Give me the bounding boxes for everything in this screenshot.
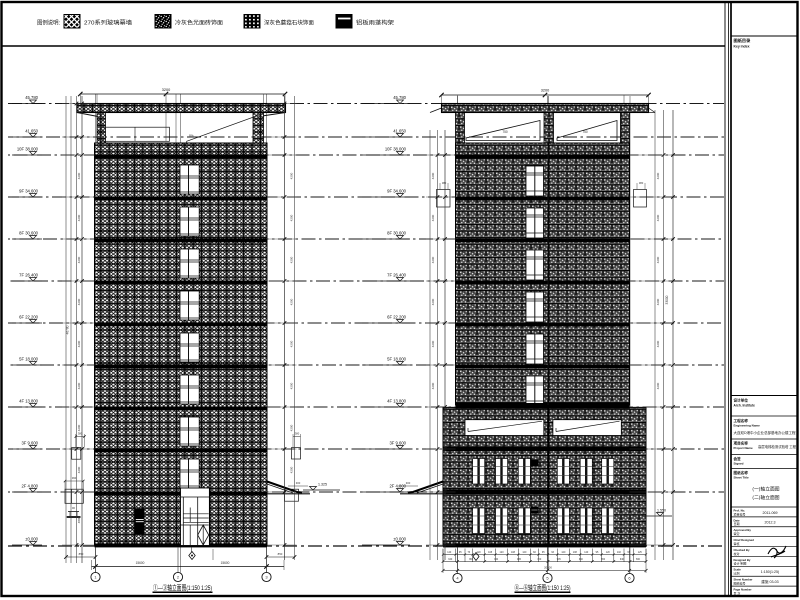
svg-text:4200: 4200 bbox=[656, 214, 660, 221]
svg-text:4200: 4200 bbox=[290, 424, 294, 431]
svg-text:4200: 4200 bbox=[656, 172, 660, 179]
svg-text:33000: 33000 bbox=[665, 295, 669, 304]
svg-text:会签: 会签 bbox=[733, 456, 742, 461]
svg-text:铝板雨蓬构架: 铝板雨蓬构架 bbox=[356, 19, 394, 27]
svg-text:8%: 8% bbox=[189, 134, 194, 138]
svg-text:9F 34.600: 9F 34.600 bbox=[19, 188, 39, 193]
svg-text:校对: 校对 bbox=[734, 551, 740, 556]
svg-text:960: 960 bbox=[469, 558, 474, 561]
svg-text:120: 120 bbox=[606, 551, 611, 554]
svg-text:±0.000: ±0.000 bbox=[393, 536, 406, 541]
svg-text:4200: 4200 bbox=[431, 256, 435, 263]
svg-text:750: 750 bbox=[582, 130, 588, 134]
svg-text:120: 120 bbox=[522, 551, 527, 554]
svg-text:4200: 4200 bbox=[290, 466, 294, 473]
svg-text:15600: 15600 bbox=[221, 561, 230, 565]
svg-text:5F 18.000: 5F 18.000 bbox=[19, 356, 39, 361]
svg-text:图纸目录: 图纸目录 bbox=[734, 37, 752, 44]
svg-text:4200: 4200 bbox=[77, 466, 81, 473]
svg-text:④—⑥轴立面图(1:150 1:25): ④—⑥轴立面图(1:150 1:25) bbox=[515, 583, 571, 592]
svg-text:①—③轴立面图(1:150 1:25): ①—③轴立面图(1:150 1:25) bbox=[153, 583, 212, 592]
svg-text:270系列玻璃幕墙: 270系列玻璃幕墙 bbox=[84, 19, 132, 27]
svg-text:850: 850 bbox=[278, 552, 283, 556]
svg-text:300: 300 bbox=[406, 481, 411, 485]
svg-text:10F 38.000: 10F 38.000 bbox=[17, 146, 39, 151]
svg-text:380: 380 bbox=[442, 181, 447, 185]
svg-text:2012.3: 2012.3 bbox=[765, 521, 776, 525]
svg-text:960: 960 bbox=[601, 558, 606, 561]
svg-text:5F 18.000: 5F 18.000 bbox=[387, 356, 407, 361]
svg-text:Signed: Signed bbox=[734, 462, 744, 466]
svg-text:工程名称: 工程名称 bbox=[734, 418, 749, 423]
svg-text:4200: 4200 bbox=[77, 172, 81, 179]
svg-text:850: 850 bbox=[79, 552, 84, 556]
svg-text:3F 9.600: 3F 9.600 bbox=[389, 440, 406, 445]
svg-text:4200: 4200 bbox=[77, 382, 81, 389]
svg-text:905: 905 bbox=[557, 558, 562, 561]
svg-text:日期: 日期 bbox=[734, 521, 740, 526]
svg-text:4200: 4200 bbox=[77, 424, 81, 431]
svg-text:6F 22.200: 6F 22.200 bbox=[19, 314, 39, 319]
svg-text:380: 380 bbox=[295, 432, 300, 436]
svg-text:108: 108 bbox=[511, 551, 516, 554]
svg-text:940: 940 bbox=[620, 558, 625, 561]
svg-text:108: 108 bbox=[488, 551, 493, 554]
svg-text:4200: 4200 bbox=[431, 214, 435, 221]
svg-text:页 次: 页 次 bbox=[734, 590, 741, 595]
svg-text:720: 720 bbox=[537, 558, 542, 561]
svg-text:46780: 46780 bbox=[66, 325, 70, 334]
svg-text:4200: 4200 bbox=[656, 382, 660, 389]
svg-text:7F 26.400: 7F 26.400 bbox=[19, 272, 39, 277]
svg-text:4200: 4200 bbox=[77, 340, 81, 347]
svg-text:4200: 4200 bbox=[77, 214, 81, 221]
svg-text:4200: 4200 bbox=[431, 172, 435, 179]
svg-text:108: 108 bbox=[573, 551, 578, 554]
svg-text:120: 120 bbox=[561, 551, 566, 554]
svg-text:120: 120 bbox=[447, 551, 452, 554]
svg-text:4200: 4200 bbox=[656, 298, 660, 305]
svg-text:45.780: 45.780 bbox=[393, 95, 406, 100]
svg-text:3F 9.600: 3F 9.600 bbox=[21, 440, 38, 445]
svg-text:660: 660 bbox=[636, 558, 641, 561]
svg-text:20300: 20300 bbox=[544, 565, 552, 569]
svg-text:1:150(1:25): 1:150(1:25) bbox=[761, 570, 779, 574]
svg-text:2011-069: 2011-069 bbox=[763, 511, 778, 515]
svg-text:7F 26.400: 7F 26.400 bbox=[387, 272, 407, 277]
svg-text:图纸名称: 图纸名称 bbox=[734, 470, 749, 475]
svg-text:8F 30.600: 8F 30.600 bbox=[19, 230, 39, 235]
svg-text:审核: 审核 bbox=[734, 541, 740, 546]
svg-text:9F 34.600: 9F 34.600 bbox=[387, 188, 407, 193]
svg-text:4200: 4200 bbox=[290, 256, 294, 263]
svg-text:4200: 4200 bbox=[290, 172, 294, 179]
svg-text:4F 13.800: 4F 13.800 bbox=[387, 398, 407, 403]
svg-text:Key index: Key index bbox=[734, 45, 750, 49]
svg-text:940: 940 bbox=[448, 558, 453, 561]
svg-text:300: 300 bbox=[296, 481, 301, 485]
svg-text:Engineering Name: Engineering Name bbox=[734, 424, 761, 428]
svg-text:深灰色蘑菇石块饰面: 深灰色蘑菇石块饰面 bbox=[264, 19, 314, 27]
svg-text:125: 125 bbox=[638, 551, 643, 554]
svg-text:Project Name: Project Name bbox=[734, 446, 754, 450]
svg-text:15600: 15600 bbox=[136, 561, 145, 565]
svg-text:41.650: 41.650 bbox=[393, 128, 406, 133]
svg-text:4200: 4200 bbox=[431, 382, 435, 389]
svg-text:3200: 3200 bbox=[162, 88, 170, 92]
svg-text:冷灰色光面砖饰面: 冷灰色光面砖饰面 bbox=[175, 19, 223, 27]
svg-text:图纸编号: 图纸编号 bbox=[734, 581, 746, 586]
svg-text:设计单位: 设计单位 bbox=[734, 398, 749, 403]
svg-text:10F 38.000: 10F 38.000 bbox=[385, 146, 407, 151]
svg-text:1.325: 1.325 bbox=[318, 482, 327, 486]
svg-text:±0.000: ±0.000 bbox=[25, 536, 38, 541]
svg-text:Sheet Title: Sheet Title bbox=[734, 476, 749, 480]
svg-text:4200: 4200 bbox=[290, 382, 294, 389]
svg-text:6F 22.200: 6F 22.200 bbox=[387, 314, 407, 319]
svg-text:4800: 4800 bbox=[77, 516, 81, 523]
svg-text:102: 102 bbox=[617, 551, 622, 554]
svg-text:4200: 4200 bbox=[431, 298, 435, 305]
svg-text:项目编号: 项目编号 bbox=[734, 511, 746, 516]
svg-text:905: 905 bbox=[517, 558, 522, 561]
svg-text:940: 940 bbox=[579, 558, 584, 561]
svg-text:比例: 比例 bbox=[734, 571, 740, 576]
svg-text:120: 120 bbox=[584, 551, 589, 554]
svg-text:4F 13.800: 4F 13.800 bbox=[19, 398, 39, 403]
svg-text:大连双D港中小企业总部基地办公楼工程: 大连双D港中小企业总部基地办公楼工程 bbox=[734, 430, 797, 435]
svg-text:41.650: 41.650 bbox=[25, 128, 38, 133]
svg-text:1.550: 1.550 bbox=[657, 508, 666, 512]
svg-text:45.780: 45.780 bbox=[25, 95, 38, 100]
svg-text:4200: 4200 bbox=[290, 214, 294, 221]
svg-text:940: 940 bbox=[494, 558, 499, 561]
svg-text:120: 120 bbox=[477, 551, 482, 554]
svg-text:390: 390 bbox=[72, 476, 77, 480]
svg-text:4200: 4200 bbox=[656, 256, 660, 263]
svg-text:4200: 4200 bbox=[290, 340, 294, 347]
svg-text:4200: 4200 bbox=[290, 298, 294, 305]
svg-text:8F 30.600: 8F 30.600 bbox=[387, 230, 407, 235]
svg-text:4200: 4200 bbox=[431, 340, 435, 347]
svg-text:2F 4.800: 2F 4.800 bbox=[21, 483, 38, 488]
svg-text:(一)轴立面图: (一)轴立面图 bbox=[752, 486, 779, 493]
svg-text:120: 120 bbox=[500, 551, 505, 554]
svg-text:380: 380 bbox=[639, 181, 644, 185]
svg-text:Arch. Institute: Arch. Institute bbox=[734, 404, 756, 408]
svg-text:项目名称: 项目名称 bbox=[734, 441, 749, 446]
svg-text:高层电梯检测试验塔 工程: 高层电梯检测试验塔 工程 bbox=[758, 444, 797, 449]
svg-text:建施 03-03: 建施 03-03 bbox=[761, 579, 778, 584]
svg-text:4200: 4200 bbox=[656, 340, 660, 347]
svg-text:审定: 审定 bbox=[734, 531, 740, 536]
svg-text:图例说明:: 图例说明: bbox=[37, 19, 60, 27]
svg-text:3200: 3200 bbox=[541, 89, 549, 93]
svg-text:750: 750 bbox=[502, 130, 508, 134]
svg-text:4200: 4200 bbox=[77, 298, 81, 305]
svg-text:设计 制图: 设计 制图 bbox=[734, 561, 747, 566]
svg-text:(二)轴立面图: (二)轴立面图 bbox=[752, 494, 779, 501]
svg-text:4200: 4200 bbox=[77, 256, 81, 263]
